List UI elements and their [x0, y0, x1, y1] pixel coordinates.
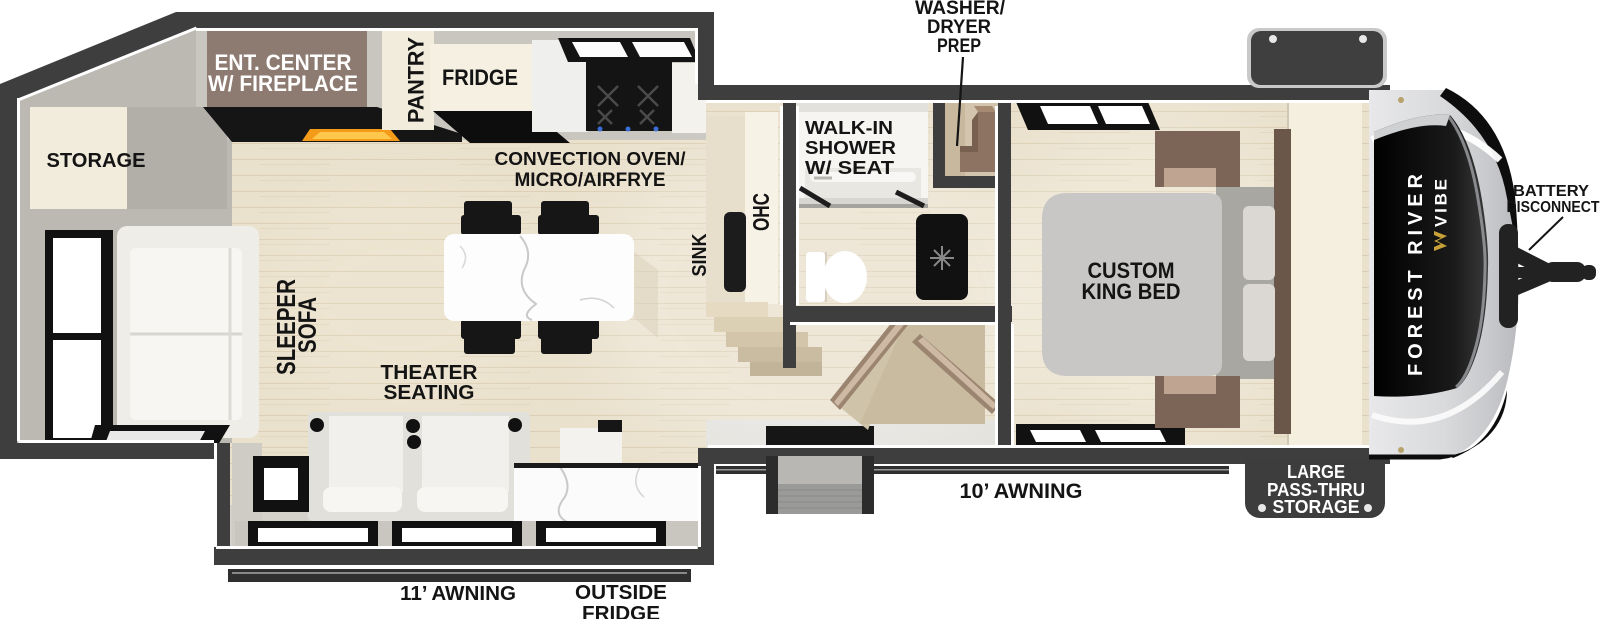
svg-text:FRIDGE: FRIDGE: [582, 603, 660, 619]
svg-text:SHOWER: SHOWER: [805, 138, 896, 158]
svg-text:SINK: SINK: [689, 233, 711, 276]
svg-text:OHC: OHC: [748, 193, 774, 231]
svg-text:WALK-IN: WALK-IN: [805, 118, 893, 138]
svg-text:W/ SEAT: W/ SEAT: [805, 158, 894, 178]
svg-text:SEATING: SEATING: [384, 382, 475, 404]
svg-text:STORAGE: STORAGE: [1273, 497, 1360, 517]
svg-text:BATTERY: BATTERY: [1513, 183, 1589, 200]
svg-text:THEATER: THEATER: [381, 362, 479, 384]
svg-text:DISCONNECT: DISCONNECT: [1507, 199, 1600, 216]
svg-text:DRYER: DRYER: [927, 17, 991, 38]
svg-text:KING BED: KING BED: [1082, 279, 1181, 304]
svg-text:FOREST RIVER: FOREST RIVER: [1405, 173, 1427, 376]
svg-text:LARGE: LARGE: [1287, 462, 1345, 482]
svg-text:VIBE: VIBE: [1432, 179, 1451, 227]
svg-text:OUTSIDE: OUTSIDE: [575, 582, 667, 604]
svg-text:CONVECTION OVEN/: CONVECTION OVEN/: [495, 148, 686, 169]
svg-text:PANTRY: PANTRY: [404, 37, 429, 123]
svg-text:STORAGE: STORAGE: [47, 150, 146, 172]
svg-text:PREP: PREP: [937, 36, 981, 57]
svg-text:10’ AWNING: 10’ AWNING: [960, 480, 1083, 503]
svg-text:11’ AWNING: 11’ AWNING: [400, 583, 516, 605]
svg-text:W/ FIREPLACE: W/ FIREPLACE: [208, 71, 358, 96]
svg-text:SOFA: SOFA: [294, 297, 322, 353]
svg-text:FRIDGE: FRIDGE: [442, 65, 518, 90]
svg-text:MICRO/AIRFRYE: MICRO/AIRFRYE: [515, 170, 666, 191]
